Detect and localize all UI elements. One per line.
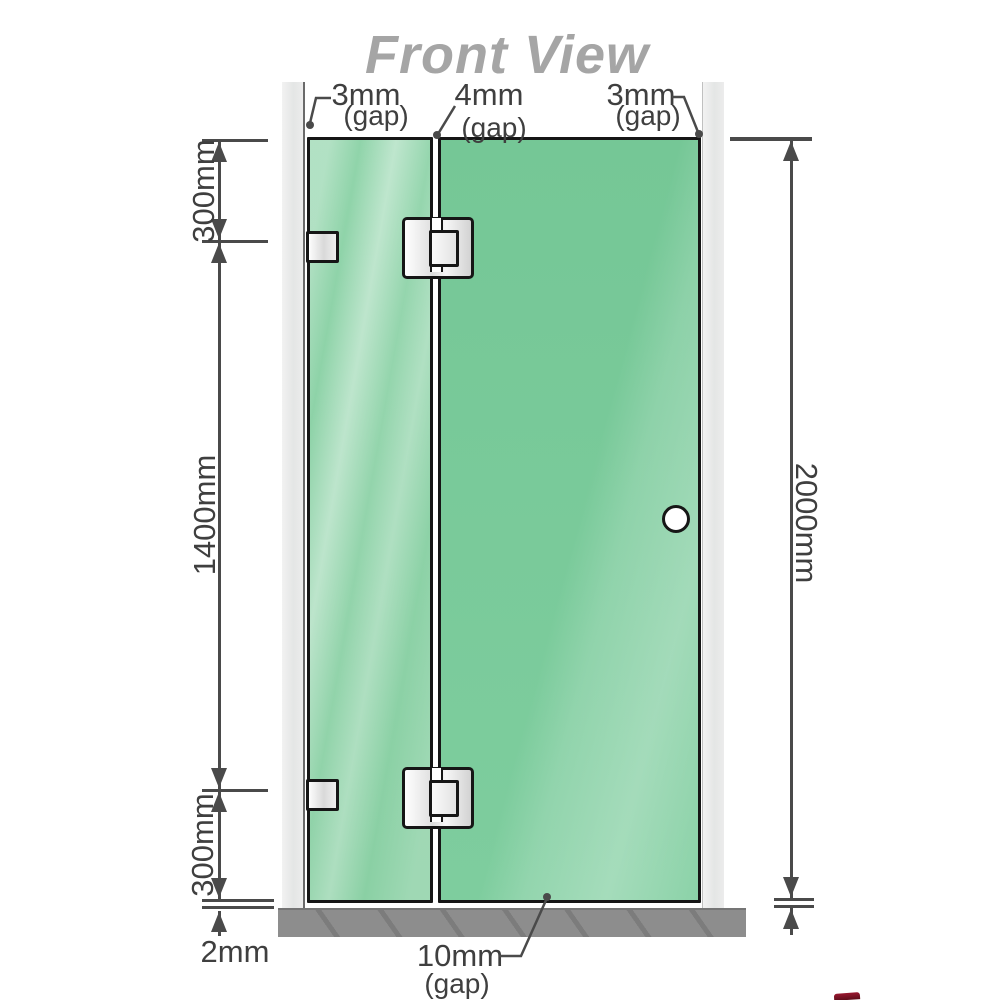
arrow-up-icon xyxy=(211,912,227,932)
arrow-up-icon xyxy=(783,909,799,929)
dim-tick xyxy=(202,906,274,909)
dim-label-left-top: 300mm xyxy=(186,139,222,242)
wall-channel-right xyxy=(702,82,724,908)
gap-label-top-middle-unit: (gap) xyxy=(461,112,526,144)
dim-label-left-middle: 1400mm xyxy=(187,455,223,576)
wall-bracket-top-icon xyxy=(306,231,339,263)
hinge-top-tab xyxy=(429,230,459,267)
arrow-up-icon xyxy=(211,243,227,263)
floor-base xyxy=(278,908,746,937)
gap-label-top-middle-value: 4mm xyxy=(455,77,524,113)
arrow-up-icon xyxy=(783,141,799,161)
hinge-bottom-tab xyxy=(429,780,459,817)
watermark-fragment xyxy=(834,992,860,1000)
gap-label-bottom-unit: (gap) xyxy=(424,968,489,1000)
dim-label-base-gap: 2mm xyxy=(201,934,270,970)
dim-tick xyxy=(774,898,814,901)
wall-channel-left xyxy=(282,82,305,908)
wall-bracket-bottom-icon xyxy=(306,779,339,811)
dim-tick xyxy=(730,137,812,141)
arrow-down-icon xyxy=(783,877,799,897)
door-handle-icon xyxy=(662,505,690,533)
dim-label-left-bottom: 300mm xyxy=(185,793,221,896)
dim-label-right-overall: 2000mm xyxy=(788,463,824,584)
gap-label-top-right-unit: (gap) xyxy=(615,100,680,132)
dim-tick xyxy=(774,905,814,908)
diagram-canvas: Front View 300mm 1400mm 300mm 2000mm 2mm… xyxy=(0,0,1000,1000)
gap-label-top-left-unit: (gap) xyxy=(343,100,408,132)
arrow-down-icon xyxy=(211,768,227,788)
dim-tick xyxy=(202,899,274,902)
